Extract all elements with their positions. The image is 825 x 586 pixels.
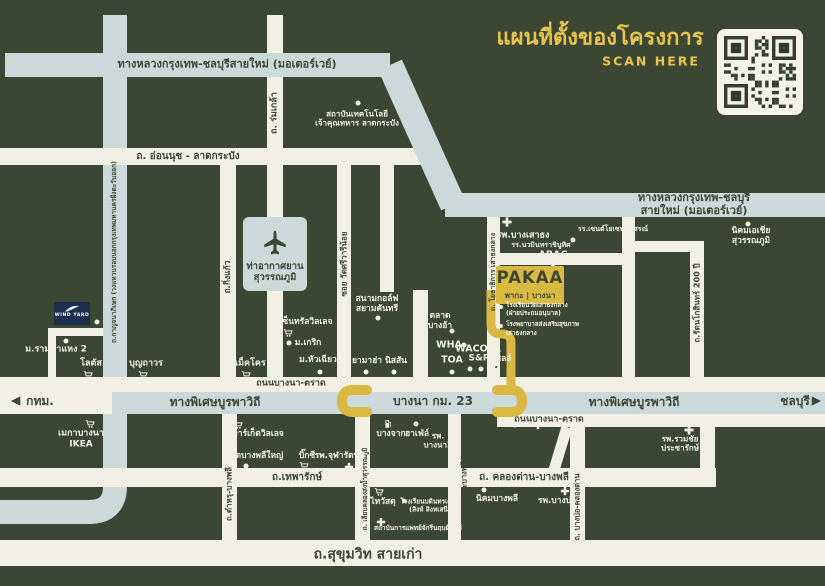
arrow-right-icon — [810, 394, 824, 408]
poi-label-ruamchai-hospital: รพ.รวมชัย ประชารักษ์ — [661, 435, 699, 454]
road-label-kanchanaphisek: ถ.กาญจนาภิเษก (วงแหวนรอบนอกกรุงเทพมหานคร… — [111, 161, 119, 343]
project-nearby-list: โรงเรียนวัดเสาธงกลาง (ฝ่ายประถมอนุบาล) โ… — [499, 302, 583, 341]
poi-label-makro: แม็คโคร — [232, 359, 265, 370]
poi-dot — [402, 499, 407, 504]
hospital-cross-icon — [684, 425, 695, 436]
poi-label-sp: S&P — [469, 354, 490, 365]
project-logo-box: PAKAA พากะ | บางนา — [496, 266, 564, 304]
cart-icon — [374, 487, 384, 497]
poi-label-nikhom-bangplee: นิคมบางพลี — [476, 494, 518, 504]
poi-label-bodindecha-school: โรงเรียนบดินทรเดชา (สิงห์ สิงหเสนี) — [400, 498, 459, 513]
poi-label-bangchak: บางจาก — [376, 429, 405, 439]
poi-label-wat-bangplee-yai: วัดบางพลีใหญ่ — [231, 451, 283, 461]
qr-code — [717, 29, 803, 115]
poi-dot — [243, 463, 249, 469]
direction-label-chonburi: ชลบุรี — [780, 394, 810, 408]
nearby-school-name: โรงเรียนวัดเสาธงกลาง — [506, 302, 568, 309]
poi-dot — [512, 422, 518, 428]
poi-label-st-joseph-school: รร.เซนต์โยเซฟอนุสรณ์ — [578, 225, 648, 233]
poi-dot — [570, 237, 576, 243]
airport-label: ท่าอากาศยาน สุวรรณภูมิ — [246, 261, 303, 283]
airplane-icon — [260, 228, 290, 258]
poi-dot — [355, 100, 361, 106]
list-item: โรงพยาบาลส่งเสริมสุขภาพ เสาธงกลาง — [499, 321, 583, 337]
cart-icon — [241, 370, 251, 380]
project-name: PAKAA — [496, 270, 564, 287]
fuel-icon — [493, 365, 502, 374]
road-label-bangna-km23: บางนา กม. 23 — [393, 394, 473, 408]
cart-icon — [83, 370, 93, 380]
poi-label-golf: สนามกอล์ฟ สยามคันทรี — [356, 294, 399, 314]
poi-dot — [375, 315, 381, 321]
road-label-theparak: ถ.เทพารักษ์ — [272, 472, 322, 484]
poi-label-boonthavorn: บุญถาวร — [129, 359, 163, 370]
poi-label-abac: ABAC — [539, 249, 568, 260]
windyard-name: WIND YARD — [54, 314, 90, 319]
poi-dot — [391, 369, 397, 375]
poi-label-asia-estate: นิคมเอเชียสุวรรณภูมิ — [714, 226, 788, 246]
road-label-sukhumvit-old: ถ.สุขุมวิท สายเก่า — [314, 547, 423, 564]
hospital-cross-icon — [502, 217, 513, 228]
poi-label-chakri-medical: สถาบันการแพทย์จักรีนฤบดินทร์ — [374, 525, 462, 533]
cart-icon — [233, 420, 243, 430]
road-label-khlongdan-bangplee: ถ. คลองด่าน-บางพลี — [479, 472, 569, 484]
road-label-motorway-1: ทางหลวงกรุงเทพ-ชลบุรีสายใหม่ (มอเตอร์เวย… — [118, 59, 337, 72]
project-location-map: แผนที่ตั้งของโครงการ SCAN HERE PAKAA พาก… — [0, 0, 825, 586]
cart-icon — [85, 419, 95, 429]
poi-label-toa: TOA — [441, 354, 463, 365]
road-label-tamru: ถ.ตำหรุ-บางพลี — [224, 467, 233, 521]
nearby-school-detail: (ฝ่ายประถมอนุบาล) — [506, 310, 561, 317]
poi-label-market-village: มาร์เก็ตวิลเลจ — [232, 429, 284, 439]
cart-icon — [299, 461, 309, 471]
road-label-srivaree: ซอย วัดศรีวารีน้อย — [339, 231, 348, 296]
windyard-logo-box: WIND YARD — [54, 302, 90, 325]
cart-icon — [138, 370, 148, 380]
road-label-kheha-bangplee: ถ. เคหะบางพลี — [461, 462, 470, 511]
poi-label-bigc: บิ๊กซี — [299, 451, 315, 461]
road-label-burapha-east: ทางพิเศษบูรพาวิถี — [589, 395, 680, 409]
direction-label-bangkok: กทม. — [26, 394, 54, 408]
poi-label-nawamin-school: รร.นวมินทราชินูทิศ — [511, 241, 570, 249]
hospital-cross-icon — [448, 421, 458, 431]
poi-label-huachiew-university: ม.หัวเฉียว — [299, 355, 337, 365]
project-subtitle: พากะ | บางนา — [496, 289, 564, 302]
poi-label-shell: เชลล์ — [492, 354, 511, 364]
poi-label-chularat3-hospital: รพ.จุฬารัตน์3 — [315, 451, 366, 461]
road-label-kingkaew: ถ.กิ่งแก้ว — [223, 260, 233, 293]
poi-label-bangna2-hospital: รพ. บางนา2 — [423, 432, 452, 451]
hospital-cross-icon — [344, 462, 354, 472]
bullet-dot-icon — [499, 324, 503, 328]
poi-dot — [478, 366, 484, 372]
arrow-left-icon — [8, 394, 22, 408]
poi-dot — [286, 340, 292, 346]
nearby-health-detail: เสาธงกลาง — [506, 330, 537, 337]
qr-pattern — [724, 36, 796, 108]
hospital-cross-icon — [560, 486, 570, 496]
poi-label-yamaha: ยามาฮ่า — [352, 356, 382, 366]
poi-label-lotus: โลตัส — [80, 359, 102, 370]
road-label-bangbo-khlongdan: ถ. บางบ่อ-คลองด่าน — [574, 473, 583, 540]
list-item: โรงเรียนวัดเสาธงกลาง (ฝ่ายประถมอนุบาล) — [499, 302, 583, 318]
poi-dot — [63, 338, 69, 344]
poi-dot — [481, 487, 487, 493]
poi-dot — [94, 319, 100, 325]
road-label-bangna-trad-2: ถนนบางนา-ตราด — [514, 415, 583, 426]
hospital-cross-icon — [533, 420, 543, 430]
nearby-health-name: โรงพยาบาลส่งเสริมสุขภาพ — [506, 321, 579, 328]
scan-here-label: SCAN HERE — [602, 54, 700, 69]
map-labels-layer: ทางหลวงกรุงเทพ-ชลบุรีสายใหม่ (มอเตอร์เวย… — [0, 0, 825, 586]
cart-icon — [283, 328, 293, 338]
poi-label-ramkhamhaeng2: ม.รามคำแหง 2 — [25, 345, 87, 356]
hospital-cross-icon — [376, 517, 386, 527]
road-label-onnut: ถ. อ่อนนุช - ลาดกระบัง — [136, 151, 239, 163]
poi-label-thaiwatsadu: ไทวัสดุ — [370, 497, 395, 507]
poi-dot — [449, 328, 455, 334]
road-label-burapha-west: ทางพิเศษบูรพาวิถี — [170, 395, 261, 409]
road-label-bangna-trad-1: ถนนบางนา-ตราด — [256, 379, 325, 390]
page-title: แผนที่ตั้งของโครงการ — [496, 20, 703, 55]
bullet-dot-icon — [499, 305, 503, 309]
poi-label-mega-ikea: เมกาบางนา IKEA — [58, 428, 104, 449]
poi-dot — [461, 342, 467, 348]
poi-label-central-village: เซ็นทรัลวิลเลจ — [280, 317, 333, 327]
poi-label-bangbo-hospital: รพ.บางบ่อ — [538, 496, 576, 506]
poi-label-kmitl: สถาบันเทคโนโลยี เจ้าคุณทหาร ลาดกระบัง — [315, 110, 399, 129]
road-label-motorway-2: ทางหลวงกรุงเทพ-ชลบุรีสายใหม่ (มอเตอร์เวย… — [629, 192, 760, 218]
feather-icon — [64, 305, 80, 313]
poi-label-hospital-bangsaothong: รพ.บางเสาธง — [497, 231, 550, 242]
poi-label-krirk-university: ม.เกริก — [295, 338, 322, 348]
road-label-rattanakosin200: ถ.รัตนโกสินทร์ 200 ปี — [692, 263, 701, 342]
road-label-romklao: ถ. ร่มเกล้า — [270, 92, 281, 134]
poi-dot — [363, 369, 369, 375]
poi-dot — [745, 221, 751, 227]
poi-dot — [413, 421, 419, 427]
poi-dot — [467, 366, 473, 372]
poi-dot — [449, 369, 455, 375]
poi-dot — [317, 369, 323, 375]
fuel-icon — [384, 420, 393, 429]
poi-label-nissan: นิสสัน — [385, 356, 407, 366]
